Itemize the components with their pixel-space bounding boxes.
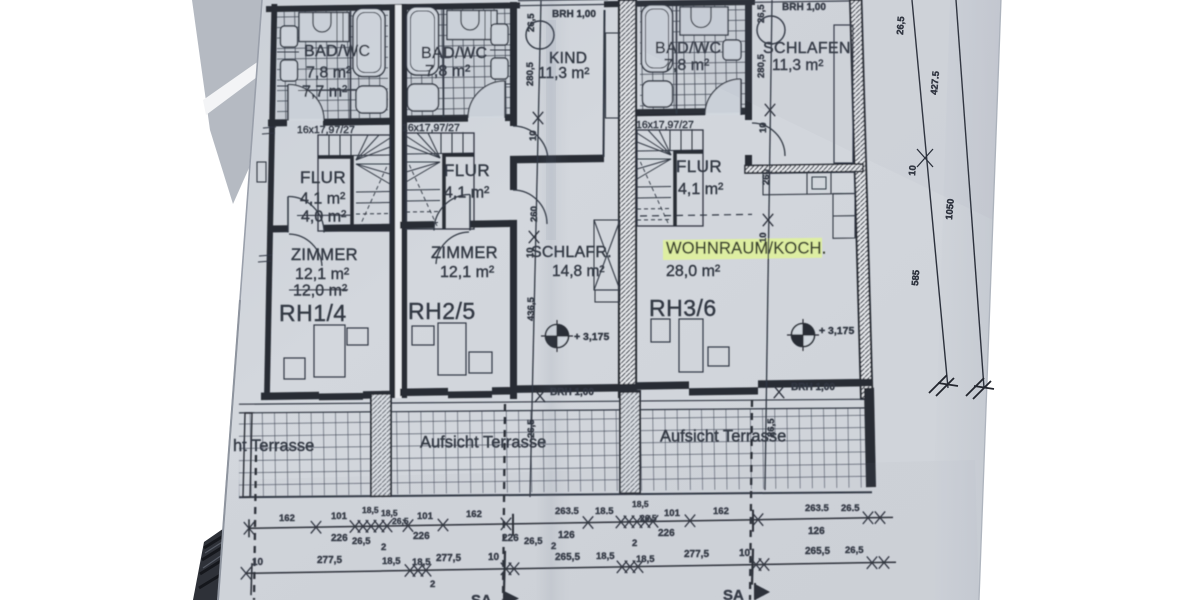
svg-text:12,1 m²: 12,1 m²	[295, 266, 350, 283]
svg-text:WOHNRAUM/KOCH.: WOHNRAUM/KOCH.	[666, 240, 826, 258]
svg-text:26,5: 26,5	[526, 419, 537, 438]
svg-text:ZIMMER: ZIMMER	[291, 246, 358, 264]
svg-text:436,5: 436,5	[526, 297, 537, 321]
svg-text:16x17,97/27: 16x17,97/27	[636, 119, 694, 131]
svg-text:RH1/4: RH1/4	[279, 300, 347, 326]
svg-text:12,0 m²: 12,0 m²	[293, 283, 348, 300]
svg-text:28,0 m²: 28,0 m²	[666, 263, 721, 280]
svg-text:585: 585	[910, 269, 922, 286]
svg-text:+ 3,175: + 3,175	[574, 331, 609, 343]
svg-text:260: 260	[761, 169, 772, 185]
svg-text:4,1 m²: 4,1 m²	[444, 185, 490, 202]
svg-text:FLUR: FLUR	[676, 157, 722, 176]
svg-text:12,1 m²: 12,1 m²	[440, 264, 495, 281]
svg-text:FLUR: FLUR	[300, 168, 346, 187]
svg-text:16x17,97/27: 16x17,97/27	[297, 124, 355, 136]
svg-text:10: 10	[525, 247, 536, 258]
svg-text:4,0 m²: 4,0 m²	[301, 209, 347, 226]
svg-text:RH2/5: RH2/5	[408, 298, 476, 324]
svg-text:RH3/6: RH3/6	[649, 295, 717, 321]
svg-text:26,5: 26,5	[766, 418, 777, 437]
svg-text:280,5: 280,5	[525, 62, 536, 86]
svg-text:10: 10	[758, 232, 769, 243]
svg-text:4,1 m²: 4,1 m²	[300, 191, 346, 208]
svg-text:BRH 1,00: BRH 1,00	[791, 382, 835, 393]
svg-text:16x17,97/27: 16x17,97/27	[402, 122, 460, 134]
svg-text:ht Terrasse: ht Terrasse	[233, 437, 314, 455]
svg-text:ZIMMER: ZIMMER	[431, 244, 498, 262]
svg-text:10: 10	[758, 122, 769, 133]
svg-text:FLUR: FLUR	[444, 161, 490, 180]
svg-text:+ 3,175: + 3,175	[819, 325, 854, 337]
svg-text:4,1 m²: 4,1 m²	[678, 181, 724, 198]
